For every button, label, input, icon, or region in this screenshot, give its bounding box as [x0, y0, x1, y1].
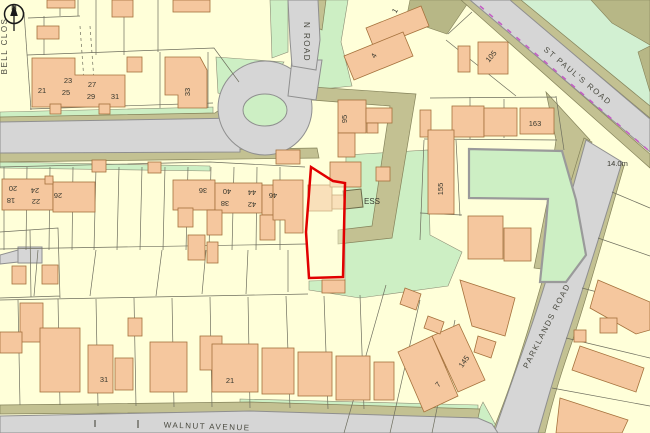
- house-number: 46: [269, 191, 277, 200]
- road-label-bell-close: BELL CLOS: [0, 18, 9, 75]
- house-number: 36: [199, 186, 207, 195]
- house-number: 40: [223, 187, 231, 196]
- house-number: 38: [221, 199, 229, 208]
- map-canvas: N BELL CLOS N ROAD ST PAUL'S ROAD PARKLA…: [0, 0, 650, 433]
- house-number: 33: [183, 88, 192, 96]
- house-number: 42: [248, 200, 256, 209]
- house-number: 22: [32, 197, 40, 206]
- house-number: 31: [111, 92, 119, 101]
- turning-circle-island: [243, 94, 287, 126]
- road-label-north-road: N ROAD: [302, 22, 311, 62]
- house-number: 25: [62, 88, 70, 97]
- north-arrow-label: N: [11, 3, 16, 12]
- site-boundary: [306, 167, 345, 278]
- map-viewport: N BELL CLOS N ROAD ST PAUL'S ROAD PARKLA…: [0, 0, 650, 433]
- house-number: 21: [226, 376, 234, 385]
- house-number: 29: [87, 92, 95, 101]
- house-number: 20: [9, 184, 17, 193]
- estate-road: [0, 118, 240, 153]
- house-number: 26: [54, 191, 62, 200]
- house-number: 155: [436, 183, 445, 196]
- spot-height-label: 14.0m: [607, 159, 628, 168]
- house-number: 95: [340, 115, 349, 123]
- house-number: 27: [88, 80, 96, 89]
- house-number: 18: [7, 196, 15, 205]
- house-number: 163: [529, 119, 542, 128]
- house-number: 21: [38, 86, 46, 95]
- house-number: 23: [64, 76, 72, 85]
- house-number: 31: [100, 375, 108, 384]
- house-number: 44: [248, 188, 256, 197]
- substation-label: ESS: [364, 197, 380, 206]
- house-number: 24: [31, 186, 39, 195]
